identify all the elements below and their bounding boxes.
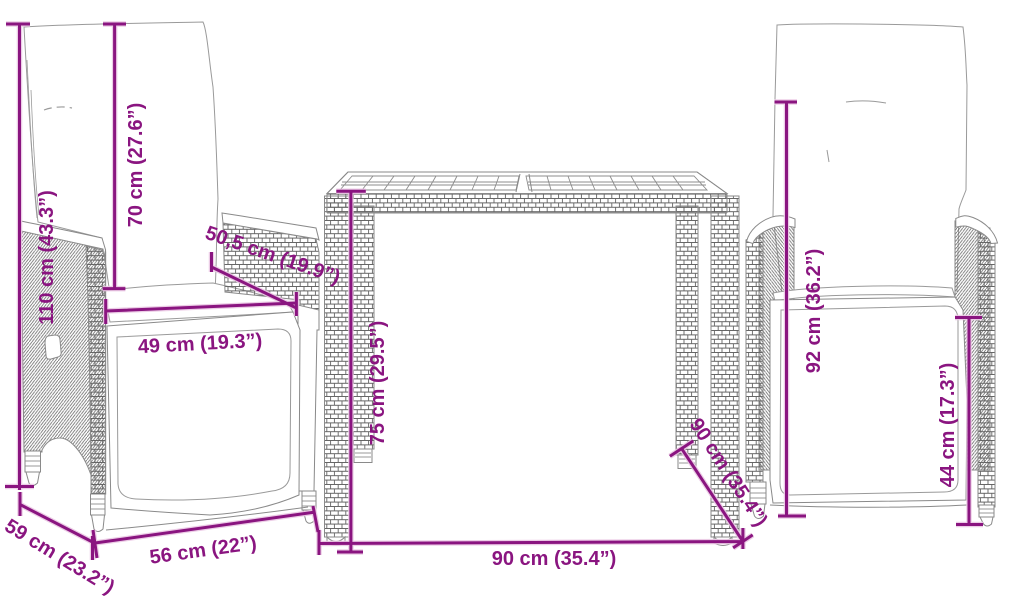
svg-text:110 cm (43.3”): 110 cm (43.3”) bbox=[36, 190, 58, 325]
svg-text:90 cm (35.4”): 90 cm (35.4”) bbox=[492, 548, 617, 570]
svg-text:75 cm (29.5”): 75 cm (29.5”) bbox=[367, 321, 389, 446]
svg-text:92 cm (36.2”): 92 cm (36.2”) bbox=[803, 249, 825, 374]
svg-text:70 cm (27.6”): 70 cm (27.6”) bbox=[125, 103, 147, 228]
svg-text:44 cm (17.3”): 44 cm (17.3”) bbox=[937, 363, 959, 488]
